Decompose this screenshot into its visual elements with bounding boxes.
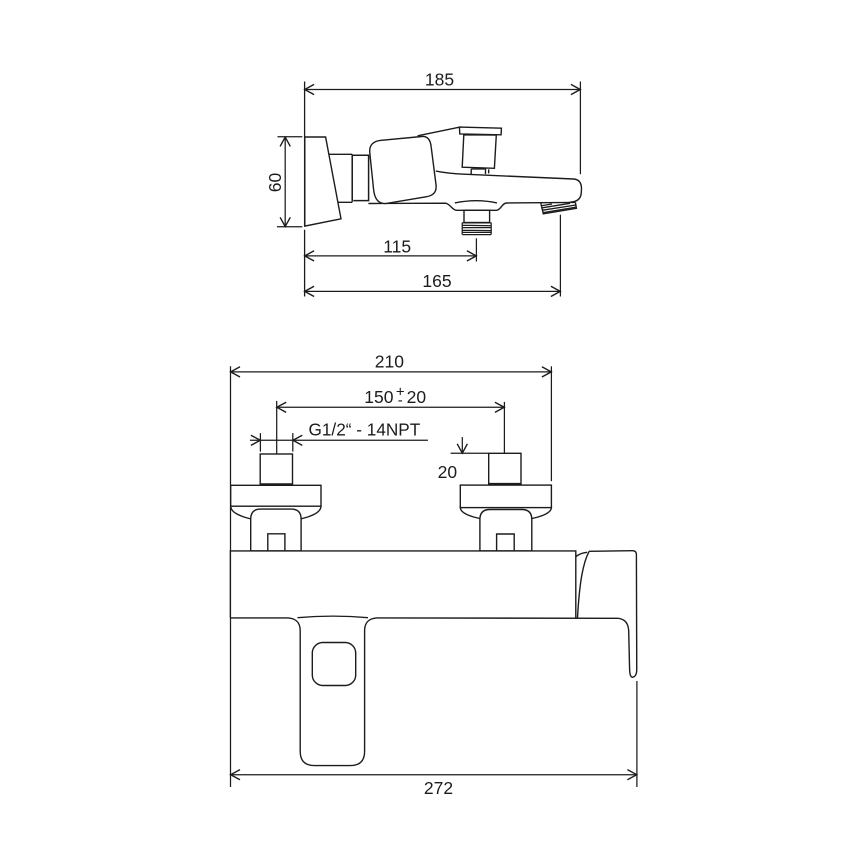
svg-text:60: 60 [265, 173, 285, 193]
svg-text:20: 20 [438, 462, 458, 482]
svg-text:185: 185 [425, 69, 454, 89]
svg-text:150: 150 [364, 387, 393, 407]
svg-text:210: 210 [375, 351, 404, 371]
svg-text:165: 165 [422, 271, 451, 291]
svg-text:115: 115 [383, 236, 411, 256]
svg-text:20: 20 [407, 387, 427, 407]
svg-text:G1/2“ - 14NPT: G1/2“ - 14NPT [309, 420, 421, 440]
svg-text:-: - [398, 392, 403, 409]
svg-text:272: 272 [424, 778, 453, 798]
